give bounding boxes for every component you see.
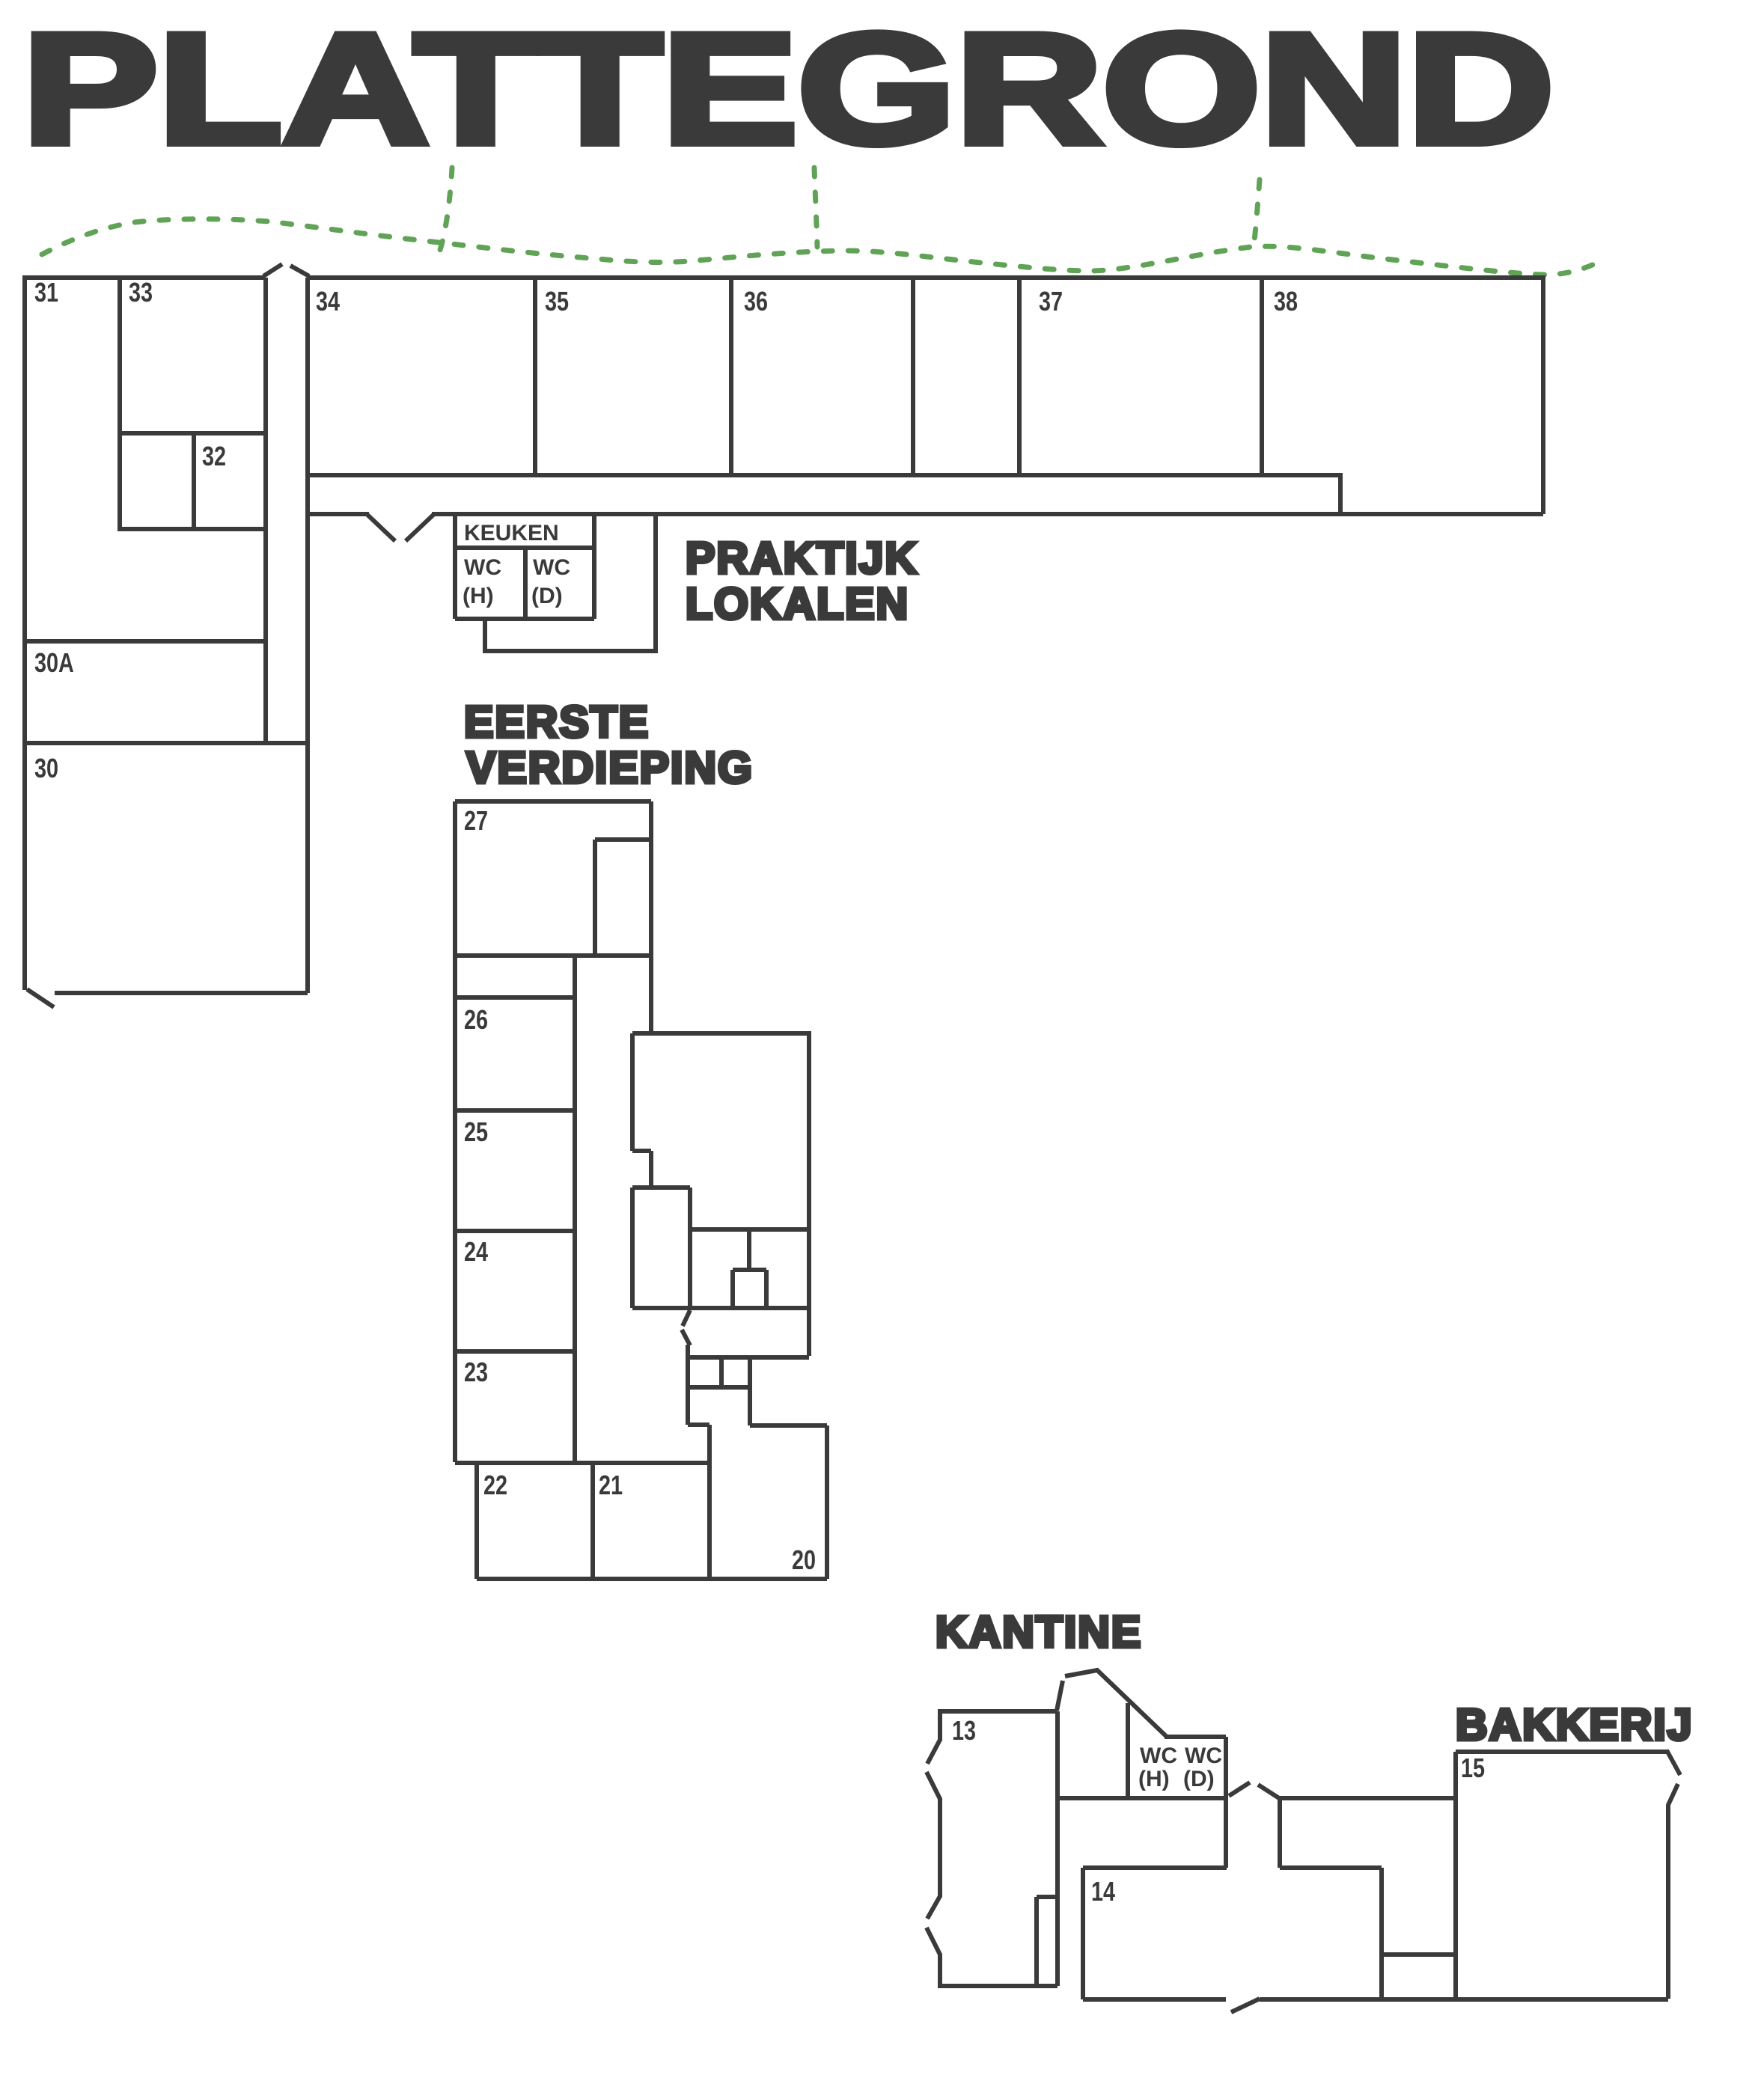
- svg-text:KEUKEN: KEUKEN: [464, 521, 559, 546]
- svg-text:34: 34: [316, 286, 340, 317]
- svg-text:30: 30: [34, 753, 58, 783]
- svg-text:14: 14: [1091, 1876, 1115, 1907]
- svg-text:KANTINE: KANTINE: [936, 1607, 1142, 1657]
- svg-text:35: 35: [545, 286, 569, 317]
- svg-text:33: 33: [129, 277, 153, 308]
- svg-text:WC: WC: [1140, 1744, 1177, 1768]
- svg-text:15: 15: [1461, 1752, 1485, 1783]
- svg-text:BAKKERIJ: BAKKERIJ: [1456, 1700, 1694, 1750]
- svg-text:21: 21: [599, 1470, 623, 1500]
- svg-text:31: 31: [34, 277, 58, 308]
- svg-text:PLATTEGROND: PLATTEGROND: [22, 1, 1554, 177]
- svg-text:32: 32: [202, 441, 226, 471]
- svg-text:20: 20: [792, 1544, 816, 1575]
- svg-text:(H): (H): [1138, 1767, 1170, 1791]
- svg-text:LOKALEN: LOKALEN: [686, 579, 909, 629]
- svg-text:WC: WC: [533, 555, 570, 580]
- svg-text:37: 37: [1039, 286, 1063, 317]
- svg-text:38: 38: [1274, 286, 1298, 317]
- svg-text:WC: WC: [1185, 1744, 1222, 1768]
- svg-text:36: 36: [744, 286, 768, 317]
- svg-text:30A: 30A: [34, 647, 74, 678]
- svg-text:13: 13: [952, 1715, 976, 1746]
- svg-text:(D): (D): [1183, 1767, 1215, 1791]
- svg-text:25: 25: [464, 1116, 488, 1147]
- svg-text:(H): (H): [463, 584, 494, 608]
- svg-text:WC: WC: [464, 555, 501, 580]
- svg-text:27: 27: [464, 805, 488, 836]
- svg-text:(D): (D): [531, 584, 563, 608]
- svg-text:PRAKTIJK: PRAKTIJK: [686, 534, 918, 583]
- svg-text:EERSTE: EERSTE: [464, 697, 650, 747]
- svg-text:VERDIEPING: VERDIEPING: [466, 743, 754, 792]
- svg-text:23: 23: [464, 1357, 488, 1387]
- svg-text:26: 26: [464, 1004, 488, 1035]
- svg-text:24: 24: [464, 1236, 488, 1267]
- svg-text:22: 22: [483, 1470, 507, 1500]
